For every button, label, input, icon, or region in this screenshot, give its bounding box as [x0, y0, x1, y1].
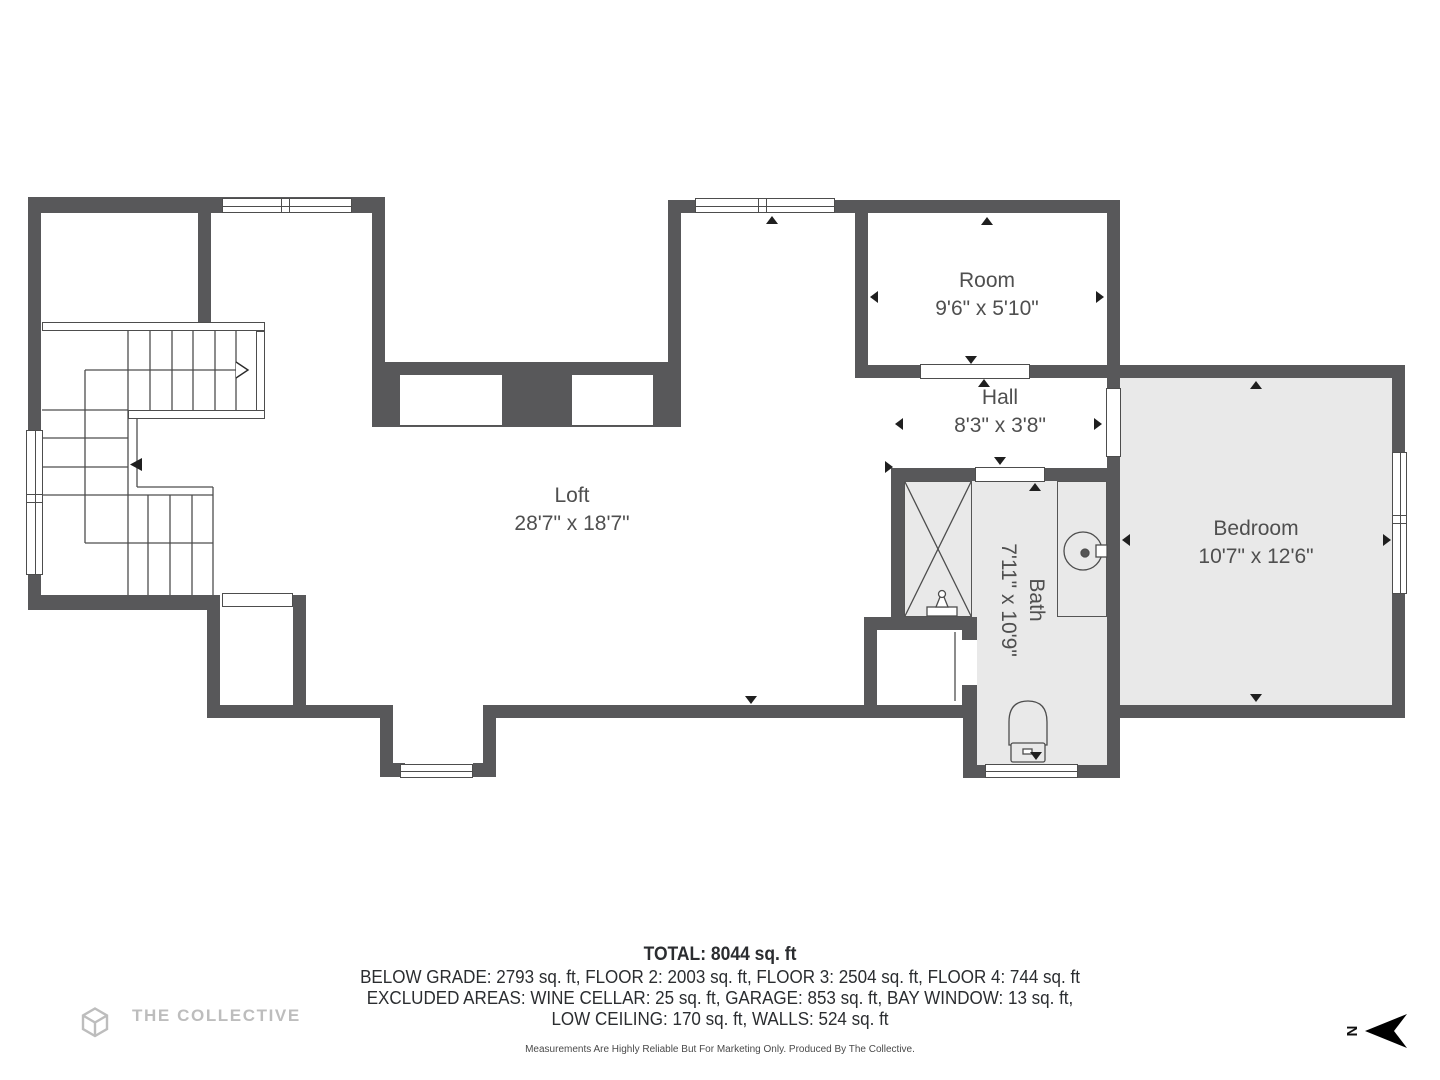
- logo-text: THE COLLECTIVE: [132, 1006, 301, 1026]
- room-name: Loft: [514, 482, 629, 510]
- room-dims: 7'11" x 10'9": [994, 543, 1022, 657]
- total-area: TOTAL: 8044 sq. ft: [58, 944, 1383, 966]
- disclaimer: Measurements Are Highly Reliable But For…: [0, 1044, 1440, 1055]
- room-label-room: Room 9'6" x 5'10": [935, 267, 1039, 323]
- room-label-bedroom: Bedroom 10'7" x 12'6": [1198, 515, 1313, 571]
- sink-icon: [1064, 532, 1107, 570]
- room-dims: 28'7" x 18'7": [514, 510, 629, 538]
- north-label: N: [1340, 1021, 1360, 1041]
- staircase: [42, 331, 247, 595]
- room-name: Bedroom: [1198, 515, 1313, 543]
- room-label-loft: Loft 28'7" x 18'7": [514, 482, 629, 538]
- logo: THE COLLECTIVE: [78, 1006, 301, 1026]
- room-name: Room: [935, 267, 1039, 295]
- room-dims: 8'3" x 3'8": [954, 412, 1046, 440]
- room-label-hall: Hall 8'3" x 3'8": [954, 384, 1046, 440]
- stair-down-arrow-icon: [130, 458, 142, 471]
- floor-areas: BELOW GRADE: 2793 sq. ft, FLOOR 2: 2003 …: [58, 966, 1383, 987]
- room-name: Hall: [954, 384, 1046, 412]
- dimension-arrows: [745, 216, 1391, 760]
- shower-icon: [905, 482, 971, 616]
- floorplan-page: Loft 28'7" x 18'7" Room 9'6" x 5'10" Hal…: [0, 0, 1440, 1080]
- stair-up-arrow-icon: [236, 362, 248, 378]
- room-name: Bath: [1022, 543, 1050, 657]
- excluded-areas: EXCLUDED AREAS: WINE CELLAR: 25 sq. ft, …: [58, 987, 1383, 1008]
- room-label-bath: Bath 7'11" x 10'9": [994, 543, 1050, 657]
- room-dims: 10'7" x 12'6": [1198, 543, 1313, 571]
- room-dims: 9'6" x 5'10": [935, 295, 1039, 323]
